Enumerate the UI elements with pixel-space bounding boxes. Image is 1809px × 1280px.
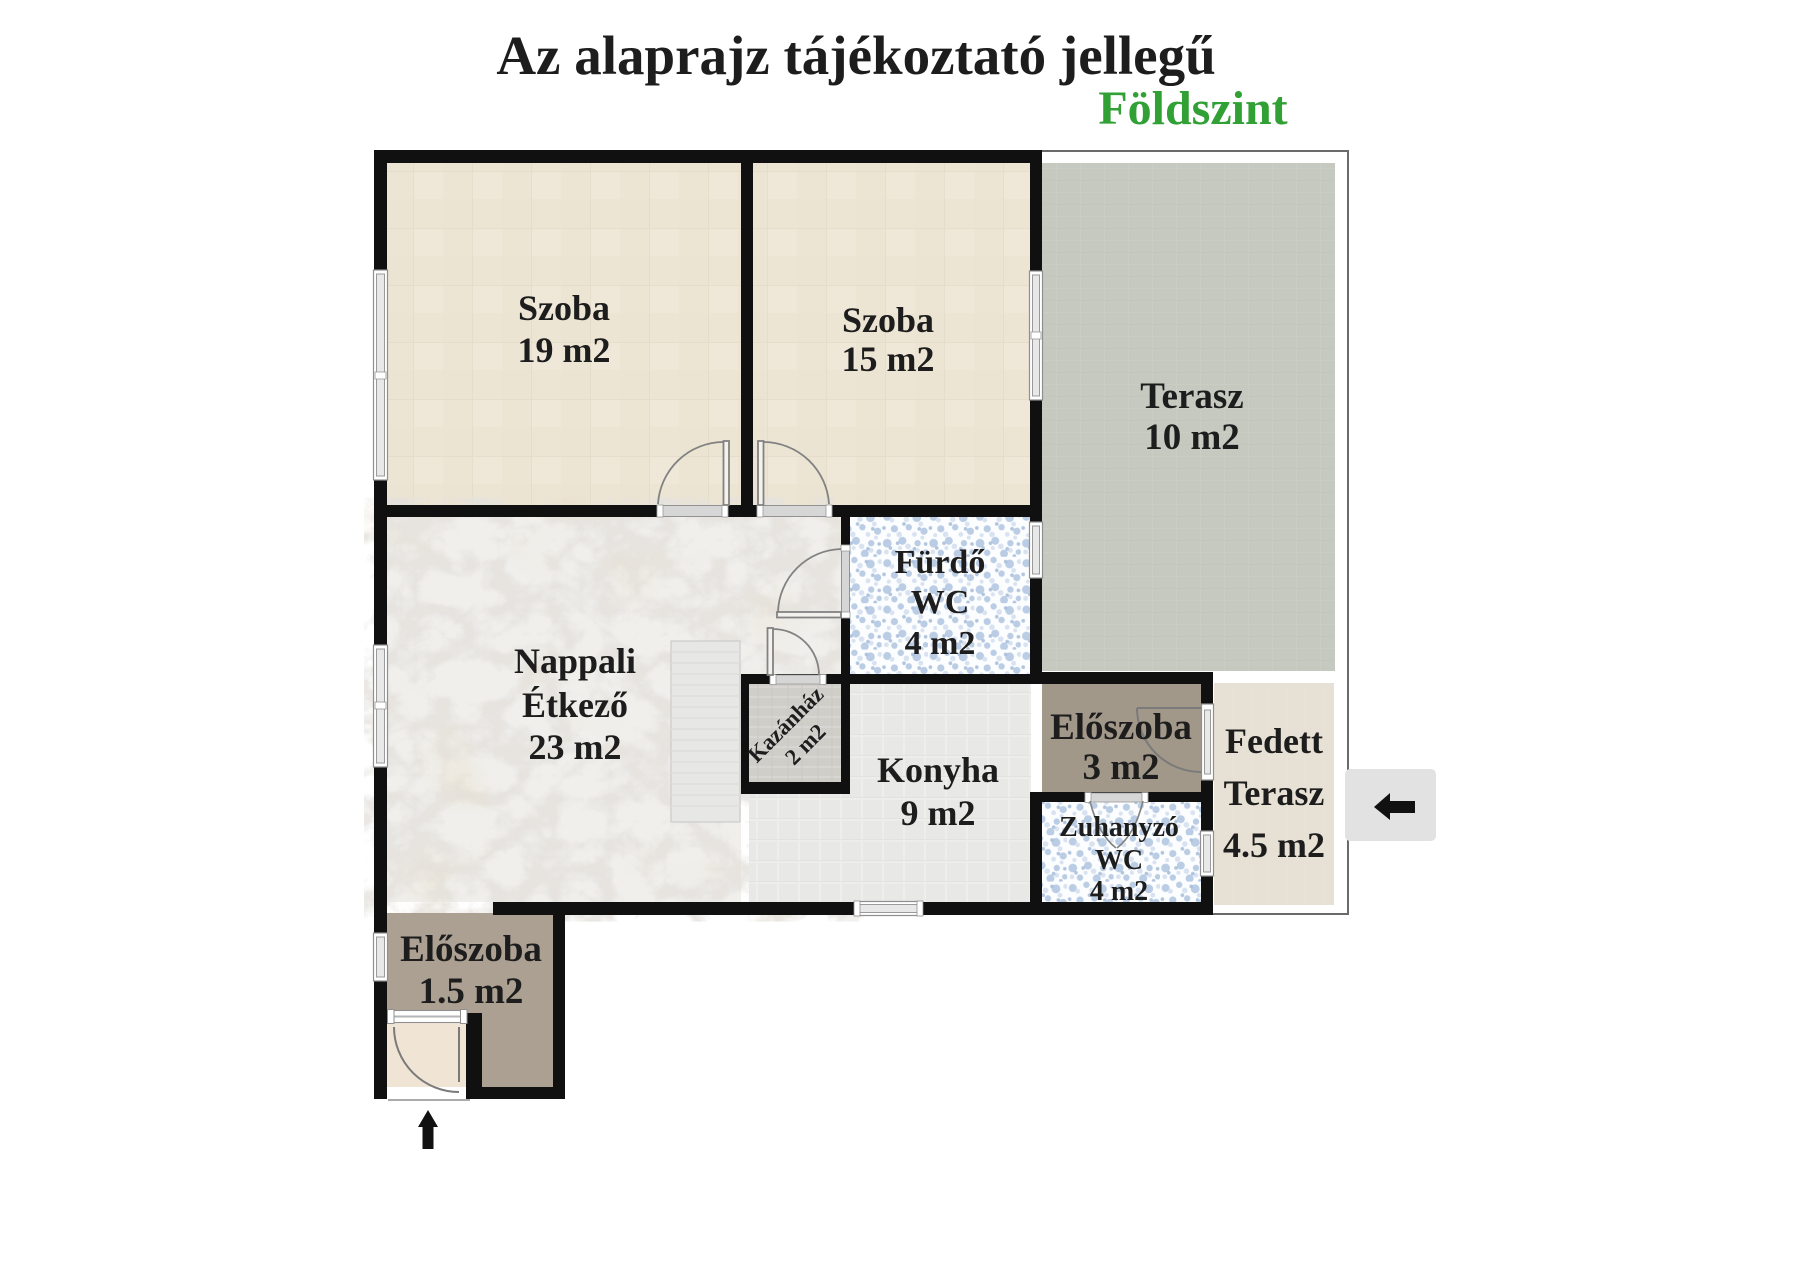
svg-text:Az alaprajz tájékoztató jelleg: Az alaprajz tájékoztató jellegű <box>496 25 1215 86</box>
svg-text:10 m2: 10 m2 <box>1144 417 1240 458</box>
svg-text:Konyha: Konyha <box>877 750 999 790</box>
svg-text:WC: WC <box>911 584 970 621</box>
svg-text:23 m2: 23 m2 <box>529 727 622 767</box>
svg-text:4.5 m2: 4.5 m2 <box>1223 825 1325 865</box>
svg-text:4 m2: 4 m2 <box>1090 876 1148 907</box>
svg-text:9 m2: 9 m2 <box>901 793 976 833</box>
svg-text:Szoba: Szoba <box>518 288 610 328</box>
svg-text:Étkező: Étkező <box>522 685 628 725</box>
svg-text:Fedett: Fedett <box>1225 721 1323 761</box>
svg-text:Előszoba: Előszoba <box>1050 707 1192 748</box>
svg-text:Terasz: Terasz <box>1224 773 1325 813</box>
svg-text:Fürdő: Fürdő <box>895 544 986 581</box>
svg-text:15 m2: 15 m2 <box>842 339 935 379</box>
svg-text:Nappali: Nappali <box>514 641 636 681</box>
svg-text:Terasz: Terasz <box>1140 376 1243 417</box>
svg-text:3 m2: 3 m2 <box>1082 747 1159 788</box>
svg-text:WC: WC <box>1095 845 1143 876</box>
svg-text:1.5 m2: 1.5 m2 <box>419 971 524 1012</box>
svg-text:Földszint: Földszint <box>1098 82 1287 135</box>
svg-text:Előszoba: Előszoba <box>400 929 542 970</box>
svg-text:Szoba: Szoba <box>842 300 934 340</box>
svg-text:Zuhanyzó: Zuhanyzó <box>1059 812 1179 843</box>
svg-text:19 m2: 19 m2 <box>518 330 611 370</box>
svg-text:4 m2: 4 m2 <box>905 625 976 662</box>
